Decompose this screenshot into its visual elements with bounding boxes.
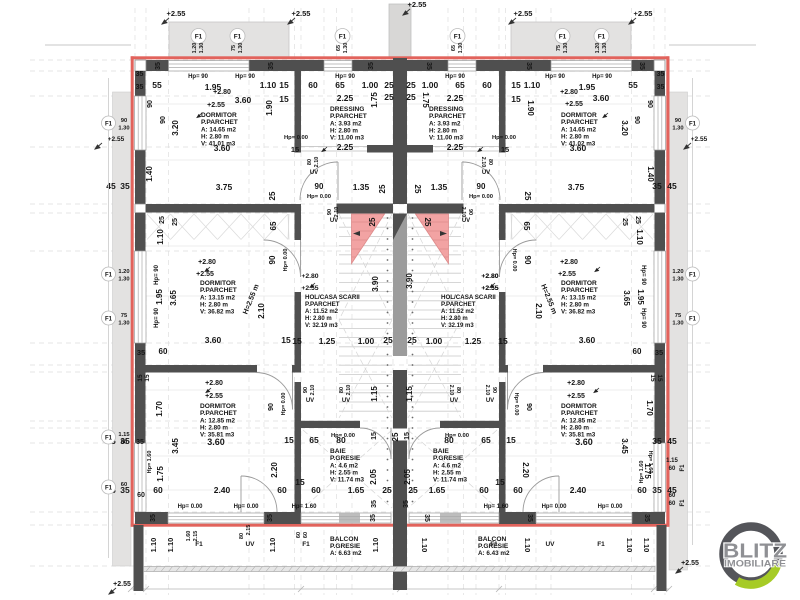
- svg-text:A: 6.63 m2: A: 6.63 m2: [330, 550, 362, 557]
- svg-text:65: 65: [455, 80, 465, 90]
- svg-text:25: 25: [406, 92, 416, 102]
- svg-text:A: 11.52 m2: A: 11.52 m2: [305, 309, 339, 315]
- svg-text:F1: F1: [105, 121, 113, 127]
- svg-text:Hp= 90: Hp= 90: [335, 74, 356, 80]
- svg-text:P.GRESIE: P.GRESIE: [330, 543, 361, 550]
- svg-text:UV: UV: [245, 541, 255, 548]
- svg-text:2.25: 2.25: [337, 142, 354, 152]
- svg-text:2.05: 2.05: [369, 469, 378, 485]
- svg-text:90: 90: [467, 209, 473, 215]
- svg-text:2.20: 2.20: [521, 462, 530, 478]
- svg-text:1.15: 1.15: [405, 386, 414, 402]
- svg-text:2.10: 2.10: [334, 207, 340, 218]
- svg-text:60: 60: [482, 80, 492, 90]
- svg-text:1.95: 1.95: [636, 289, 645, 305]
- svg-text:H: 2.55 m: H: 2.55 m: [330, 470, 358, 477]
- svg-text:80: 80: [444, 435, 454, 445]
- svg-text:35: 35: [268, 62, 275, 70]
- svg-text:1.10: 1.10: [523, 538, 532, 553]
- svg-text:90: 90: [268, 255, 277, 264]
- svg-text:A: 3.93 m2: A: 3.93 m2: [429, 121, 461, 128]
- svg-text:BAIE: BAIE: [330, 448, 346, 455]
- svg-text:F1: F1: [105, 435, 113, 441]
- svg-text:15: 15: [137, 374, 144, 382]
- svg-text:Hp= 0.00: Hp= 0.00: [307, 194, 331, 200]
- svg-text:35: 35: [643, 514, 650, 522]
- svg-text:+2.55: +2.55: [514, 9, 533, 18]
- svg-text:V: 11.74 m3: V: 11.74 m3: [433, 477, 467, 484]
- svg-text:P.PARCHET: P.PARCHET: [200, 287, 237, 294]
- svg-text:60: 60: [277, 485, 287, 495]
- svg-text:35: 35: [267, 514, 274, 522]
- svg-text:P.PARCHET: P.PARCHET: [561, 287, 598, 294]
- svg-text:1.95: 1.95: [155, 289, 164, 305]
- svg-text:2.20: 2.20: [270, 462, 279, 478]
- svg-text:HOL/CASA SCARII: HOL/CASA SCARII: [305, 294, 360, 301]
- svg-text:F1: F1: [454, 34, 462, 41]
- svg-text:1.10: 1.10: [166, 538, 175, 553]
- svg-text:F1: F1: [689, 272, 697, 278]
- svg-text:90: 90: [646, 100, 653, 108]
- svg-text:Hp= 0.00: Hp= 0.00: [283, 249, 289, 272]
- svg-text:60: 60: [303, 532, 309, 538]
- svg-text:35: 35: [136, 71, 144, 78]
- svg-text:Hp= 0.00: Hp= 0.00: [469, 194, 493, 200]
- svg-text:1.10: 1.10: [149, 538, 158, 553]
- svg-text:35: 35: [370, 514, 377, 522]
- svg-text:25: 25: [378, 184, 387, 193]
- svg-text:2.10: 2.10: [346, 385, 352, 396]
- svg-text:2.10: 2.10: [484, 385, 490, 396]
- svg-text:Hp= 90: Hp= 90: [640, 265, 646, 286]
- svg-text:F1: F1: [195, 34, 203, 41]
- svg-text:60: 60: [669, 493, 676, 499]
- svg-text:15: 15: [501, 145, 509, 154]
- svg-text:65: 65: [269, 221, 278, 230]
- svg-text:DRESSING: DRESSING: [429, 106, 463, 113]
- svg-text:2.10: 2.10: [310, 385, 316, 396]
- svg-text:A: 4.6 m2: A: 4.6 m2: [433, 463, 461, 470]
- svg-text:80: 80: [455, 387, 461, 393]
- svg-text:3.90: 3.90: [405, 273, 414, 289]
- svg-text:V: 36.82 m3: V: 36.82 m3: [200, 309, 235, 316]
- svg-text:3.20: 3.20: [171, 120, 180, 136]
- svg-text:UV: UV: [482, 170, 490, 176]
- svg-text:DORMITOR: DORMITOR: [200, 403, 236, 410]
- svg-text:25: 25: [384, 80, 394, 90]
- svg-text:80: 80: [336, 435, 346, 445]
- svg-text:90: 90: [160, 116, 167, 124]
- svg-text:DORMITOR: DORMITOR: [561, 280, 597, 287]
- svg-text:A: 13.15 m2: A: 13.15 m2: [561, 295, 596, 302]
- svg-text:1.10: 1.10: [635, 229, 644, 245]
- svg-text:25: 25: [621, 218, 628, 226]
- svg-text:80: 80: [487, 159, 493, 165]
- svg-text:DRESSING: DRESSING: [330, 106, 364, 113]
- svg-text:15: 15: [295, 477, 305, 487]
- svg-text:15: 15: [498, 336, 508, 346]
- svg-text:1.90: 1.90: [526, 100, 535, 116]
- svg-text:A: 13.15 m2: A: 13.15 m2: [200, 295, 235, 302]
- svg-text:+2.80: +2.80: [213, 89, 231, 96]
- svg-text:F1: F1: [598, 34, 606, 41]
- svg-text:H: 2.80 m: H: 2.80 m: [201, 134, 229, 141]
- svg-text:25: 25: [634, 216, 641, 224]
- svg-text:+2.55: +2.55: [113, 581, 131, 588]
- svg-text:1.30: 1.30: [118, 126, 129, 132]
- svg-text:60: 60: [513, 485, 523, 495]
- svg-text:1.20: 1.20: [672, 269, 683, 275]
- svg-text:3.60: 3.60: [575, 437, 593, 447]
- svg-text:V: 11.00 m3: V: 11.00 m3: [429, 135, 463, 142]
- svg-text:3.20: 3.20: [620, 120, 629, 136]
- svg-text:3.65: 3.65: [169, 290, 178, 306]
- svg-text:1.10: 1.10: [642, 538, 651, 553]
- svg-text:35: 35: [657, 71, 665, 78]
- svg-text:1.30: 1.30: [458, 43, 464, 54]
- svg-text:45: 45: [106, 181, 116, 191]
- svg-text:Hp= 90: Hp= 90: [445, 74, 466, 80]
- svg-text:DORMITOR: DORMITOR: [561, 112, 597, 119]
- svg-text:15: 15: [284, 435, 294, 445]
- svg-text:+2.80: +2.80: [560, 259, 578, 266]
- svg-text:UV: UV: [462, 218, 470, 224]
- svg-text:90: 90: [315, 182, 324, 191]
- svg-text:60: 60: [633, 347, 642, 356]
- svg-text:+2.55: +2.55: [634, 9, 653, 18]
- svg-text:A: 6.43 m2: A: 6.43 m2: [478, 550, 510, 557]
- svg-text:+2.80: +2.80: [205, 380, 223, 387]
- svg-text:HOL/CASA SCARII: HOL/CASA SCARII: [441, 294, 496, 301]
- svg-text:H: 2.80 m: H: 2.80 m: [561, 302, 589, 309]
- svg-text:15: 15: [511, 80, 521, 90]
- svg-text:F1: F1: [105, 316, 113, 322]
- svg-text:V: 32.19 m3: V: 32.19 m3: [441, 323, 474, 329]
- svg-text:3.60: 3.60: [214, 143, 231, 153]
- svg-text:3.60: 3.60: [570, 143, 587, 153]
- svg-text:1.10: 1.10: [268, 538, 277, 553]
- svg-text:35: 35: [425, 62, 432, 70]
- svg-text:25: 25: [523, 192, 532, 201]
- svg-text:1.10: 1.10: [371, 538, 380, 553]
- svg-text:25: 25: [423, 218, 432, 227]
- svg-text:2.10: 2.10: [257, 303, 266, 319]
- svg-text:H: 2.80 m: H: 2.80 m: [330, 128, 358, 135]
- svg-text:2.10: 2.10: [314, 157, 320, 168]
- svg-text:IMOBILIARE: IMOBILIARE: [724, 559, 786, 569]
- svg-text:2.10: 2.10: [448, 385, 454, 396]
- svg-text:1.30: 1.30: [563, 43, 569, 54]
- svg-text:35: 35: [155, 62, 162, 70]
- svg-text:F1: F1: [105, 272, 113, 278]
- svg-text:H: 2.55 m: H: 2.55 m: [433, 470, 461, 477]
- svg-text:15: 15: [281, 335, 291, 345]
- svg-text:3.75: 3.75: [568, 182, 585, 192]
- svg-text:65: 65: [522, 222, 531, 231]
- svg-text:+2.55: +2.55: [292, 9, 311, 18]
- svg-text:Hp= 0.00: Hp= 0.00: [492, 135, 516, 141]
- svg-text:3.60: 3.60: [579, 335, 596, 345]
- svg-text:90: 90: [525, 403, 532, 411]
- svg-text:V: 36.82 m3: V: 36.82 m3: [561, 309, 596, 316]
- svg-text:25: 25: [368, 217, 377, 226]
- svg-text:90: 90: [675, 118, 681, 124]
- svg-text:V: 11.74 m3: V: 11.74 m3: [330, 477, 364, 484]
- svg-text:1.25: 1.25: [319, 336, 336, 346]
- svg-text:65: 65: [335, 80, 345, 90]
- svg-text:15: 15: [291, 145, 299, 154]
- svg-text:Hp= 90: Hp= 90: [592, 74, 613, 80]
- svg-text:F1: F1: [597, 541, 605, 548]
- svg-text:1.40: 1.40: [646, 166, 655, 182]
- svg-text:Hp= 0.00: Hp= 0.00: [511, 249, 517, 272]
- svg-text:15: 15: [279, 80, 289, 90]
- svg-text:65: 65: [336, 45, 342, 51]
- svg-text:DORMITOR: DORMITOR: [201, 112, 237, 119]
- svg-text:1.00: 1.00: [422, 80, 439, 90]
- svg-text:P.GRESIE: P.GRESIE: [433, 455, 464, 462]
- svg-text:2.05: 2.05: [403, 469, 412, 485]
- svg-text:UV: UV: [306, 398, 314, 404]
- svg-text:35: 35: [652, 181, 662, 191]
- svg-text:P.PARCHET: P.PARCHET: [429, 113, 466, 120]
- svg-text:+2.55: +2.55: [108, 136, 125, 143]
- svg-text:1.75: 1.75: [370, 92, 379, 108]
- svg-text:15: 15: [404, 432, 411, 440]
- svg-text:15: 15: [506, 435, 516, 445]
- svg-text:1.20: 1.20: [118, 269, 129, 275]
- svg-text:25: 25: [391, 432, 400, 441]
- svg-text:P.PARCHET: P.PARCHET: [200, 410, 237, 417]
- svg-text:Hp= 90: Hp= 90: [235, 74, 256, 80]
- svg-text:1.20: 1.20: [595, 43, 601, 54]
- svg-text:A: 3.93 m2: A: 3.93 m2: [330, 121, 362, 128]
- svg-text:+2.80: +2.80: [567, 380, 585, 387]
- svg-text:80: 80: [307, 159, 313, 165]
- svg-text:F1: F1: [234, 34, 242, 41]
- svg-text:A: 14.65 m2: A: 14.65 m2: [201, 127, 236, 134]
- svg-text:1.60: 1.60: [186, 531, 192, 542]
- svg-text:1.90: 1.90: [265, 100, 274, 116]
- svg-text:75: 75: [556, 45, 562, 51]
- svg-text:45: 45: [667, 436, 677, 446]
- svg-text:60: 60: [311, 485, 321, 495]
- svg-text:2.40: 2.40: [570, 485, 587, 495]
- svg-text:3.60: 3.60: [205, 335, 222, 345]
- svg-text:1.70: 1.70: [645, 400, 654, 416]
- svg-text:35: 35: [652, 485, 662, 495]
- svg-text:90: 90: [477, 182, 486, 191]
- svg-text:60: 60: [121, 440, 127, 446]
- svg-text:+2.80: +2.80: [198, 259, 216, 266]
- svg-text:+2.55: +2.55: [408, 0, 427, 9]
- svg-text:80: 80: [239, 533, 245, 539]
- svg-text:P.PARCHET: P.PARCHET: [201, 119, 238, 126]
- svg-text:Hp= 1.60: Hp= 1.60: [484, 504, 510, 510]
- svg-text:+2.55: +2.55: [207, 102, 225, 109]
- svg-text:25: 25: [408, 485, 418, 495]
- svg-text:Hp= 90: Hp= 90: [545, 74, 566, 80]
- svg-text:60: 60: [159, 347, 168, 356]
- svg-text:45: 45: [667, 181, 677, 191]
- svg-text:H: 2.80 m: H: 2.80 m: [305, 316, 332, 322]
- svg-text:90: 90: [327, 209, 333, 215]
- svg-text:DORMITOR: DORMITOR: [200, 280, 236, 287]
- svg-text:UV: UV: [330, 218, 338, 224]
- svg-text:35: 35: [657, 84, 665, 91]
- svg-text:60: 60: [308, 80, 318, 90]
- svg-text:Hp= 0.00: Hp= 0.00: [281, 393, 287, 416]
- svg-text:+2.55: +2.55: [205, 393, 223, 400]
- svg-text:1.30: 1.30: [602, 43, 608, 54]
- svg-text:65: 65: [451, 45, 457, 51]
- svg-text:A: 11.52 m2: A: 11.52 m2: [441, 309, 475, 315]
- svg-text:35: 35: [655, 348, 663, 357]
- svg-text:Hp= 1.60: Hp= 1.60: [292, 504, 318, 510]
- svg-text:+2.55: +2.55: [558, 271, 576, 278]
- svg-text:A: 14.65 m2: A: 14.65 m2: [561, 127, 596, 134]
- svg-text:+2.55: +2.55: [691, 136, 708, 143]
- svg-text:UV: UV: [486, 398, 494, 404]
- svg-text:F1: F1: [490, 541, 498, 548]
- svg-text:90: 90: [121, 118, 127, 124]
- svg-text:15: 15: [371, 432, 378, 440]
- svg-text:35: 35: [652, 436, 662, 446]
- svg-text:1.30: 1.30: [672, 321, 683, 327]
- svg-text:60: 60: [637, 485, 647, 495]
- svg-text:35: 35: [526, 514, 533, 522]
- svg-text:Hp= 90: Hp= 90: [154, 307, 160, 328]
- svg-text:1.35: 1.35: [431, 182, 448, 192]
- svg-text:15: 15: [495, 477, 505, 487]
- svg-text:H: 2.80 m: H: 2.80 m: [441, 316, 468, 322]
- svg-text:90: 90: [633, 116, 640, 124]
- svg-text:1.00: 1.00: [358, 336, 375, 346]
- svg-text:1.40: 1.40: [145, 166, 154, 182]
- svg-text:2.10: 2.10: [534, 303, 543, 319]
- svg-text:DORMITOR: DORMITOR: [561, 403, 597, 410]
- svg-text:35: 35: [371, 500, 378, 508]
- svg-text:V: 11.00 m3: V: 11.00 m3: [330, 135, 364, 142]
- svg-text:UV: UV: [450, 398, 458, 404]
- svg-text:1.30: 1.30: [672, 277, 683, 283]
- svg-text:Hp= 0.00: Hp= 0.00: [284, 135, 308, 141]
- svg-text:1.70: 1.70: [155, 401, 164, 417]
- svg-text:+2.80: +2.80: [560, 89, 578, 96]
- svg-text:Hp= 0.00: Hp= 0.00: [178, 504, 204, 510]
- svg-text:P.PARCHET: P.PARCHET: [330, 113, 367, 120]
- svg-text:35: 35: [136, 439, 144, 446]
- svg-text:25: 25: [413, 185, 422, 194]
- svg-text:75: 75: [675, 313, 682, 319]
- svg-text:P.PARCHET: P.PARCHET: [305, 301, 340, 308]
- svg-text:25: 25: [384, 92, 394, 102]
- svg-text:+2.55: +2.55: [681, 560, 699, 567]
- svg-text:35: 35: [638, 62, 645, 70]
- svg-text:Hp= 90: Hp= 90: [640, 308, 646, 329]
- svg-text:+2.80: +2.80: [301, 273, 318, 280]
- svg-text:1.25: 1.25: [465, 336, 482, 346]
- svg-text:35: 35: [150, 514, 157, 522]
- svg-text:35: 35: [403, 500, 410, 508]
- svg-text:60: 60: [137, 492, 145, 499]
- svg-text:1.10: 1.10: [524, 80, 541, 90]
- svg-text:1.30: 1.30: [118, 277, 129, 283]
- svg-text:80: 80: [339, 387, 345, 393]
- svg-text:55: 55: [152, 80, 162, 90]
- svg-text:F1: F1: [689, 316, 697, 322]
- svg-text:35: 35: [368, 62, 375, 70]
- svg-text:+2.55: +2.55: [167, 9, 186, 18]
- svg-text:25: 25: [268, 191, 277, 200]
- svg-text:25: 25: [172, 218, 179, 226]
- svg-text:35: 35: [137, 348, 145, 357]
- svg-text:3.90: 3.90: [371, 276, 380, 292]
- svg-text:1.95: 1.95: [579, 82, 596, 92]
- svg-text:1.15: 1.15: [370, 386, 379, 402]
- svg-text:2.25: 2.25: [447, 142, 464, 152]
- svg-text:H: 2.80 m: H: 2.80 m: [429, 128, 457, 135]
- svg-text:UV: UV: [342, 398, 350, 404]
- svg-text:2.40: 2.40: [214, 485, 231, 495]
- svg-text:1.10: 1.10: [156, 229, 165, 245]
- svg-text:2.25: 2.25: [337, 93, 354, 103]
- svg-text:Hp= 0.00: Hp= 0.00: [234, 504, 260, 510]
- svg-text:60: 60: [479, 485, 489, 495]
- svg-text:1.35: 1.35: [353, 182, 370, 192]
- svg-text:60: 60: [153, 485, 163, 495]
- svg-text:35: 35: [525, 62, 532, 70]
- svg-text:15: 15: [144, 374, 151, 382]
- svg-text:90: 90: [303, 387, 309, 393]
- svg-text:F1: F1: [105, 485, 113, 491]
- svg-text:25: 25: [382, 485, 392, 495]
- svg-text:3.60: 3.60: [235, 95, 252, 105]
- svg-text:P.PARCHET: P.PARCHET: [561, 410, 598, 417]
- svg-text:V: 32.19 m3: V: 32.19 m3: [305, 323, 338, 329]
- svg-text:3.45: 3.45: [171, 438, 180, 454]
- svg-text:15: 15: [279, 94, 289, 104]
- svg-text:+2.55: +2.55: [196, 271, 214, 278]
- svg-text:1.65: 1.65: [429, 485, 446, 495]
- svg-text:1.00: 1.00: [426, 336, 443, 346]
- svg-text:Hp= 1.60: Hp= 1.60: [647, 451, 653, 474]
- svg-text:1.20: 1.20: [192, 43, 198, 54]
- svg-text:60: 60: [669, 501, 676, 507]
- svg-text:2.15: 2.15: [193, 531, 199, 542]
- svg-text:1.30: 1.30: [199, 43, 205, 54]
- svg-text:60: 60: [296, 532, 302, 538]
- svg-text:15: 15: [511, 94, 521, 104]
- svg-text:1.30: 1.30: [343, 43, 349, 54]
- svg-text:Hp= 90: Hp= 90: [188, 74, 209, 80]
- svg-text:F1: F1: [680, 464, 686, 472]
- svg-text:F1: F1: [559, 34, 567, 41]
- svg-text:25: 25: [159, 216, 166, 224]
- svg-text:3.45: 3.45: [620, 438, 629, 454]
- svg-text:BAIE: BAIE: [433, 448, 449, 455]
- svg-text:2.10: 2.10: [460, 207, 466, 218]
- svg-text:Hp= 1.60: Hp= 1.60: [639, 461, 645, 484]
- svg-text:2.15: 2.15: [246, 525, 252, 536]
- svg-text:+2.55: +2.55: [481, 285, 498, 292]
- svg-text:A: 12.85 m2: A: 12.85 m2: [200, 418, 235, 425]
- svg-text:65: 65: [481, 435, 491, 445]
- svg-text:P.PARCHET: P.PARCHET: [561, 119, 598, 126]
- svg-text:3.75: 3.75: [216, 182, 233, 192]
- svg-text:1.10: 1.10: [420, 538, 429, 553]
- svg-text:75: 75: [121, 313, 128, 319]
